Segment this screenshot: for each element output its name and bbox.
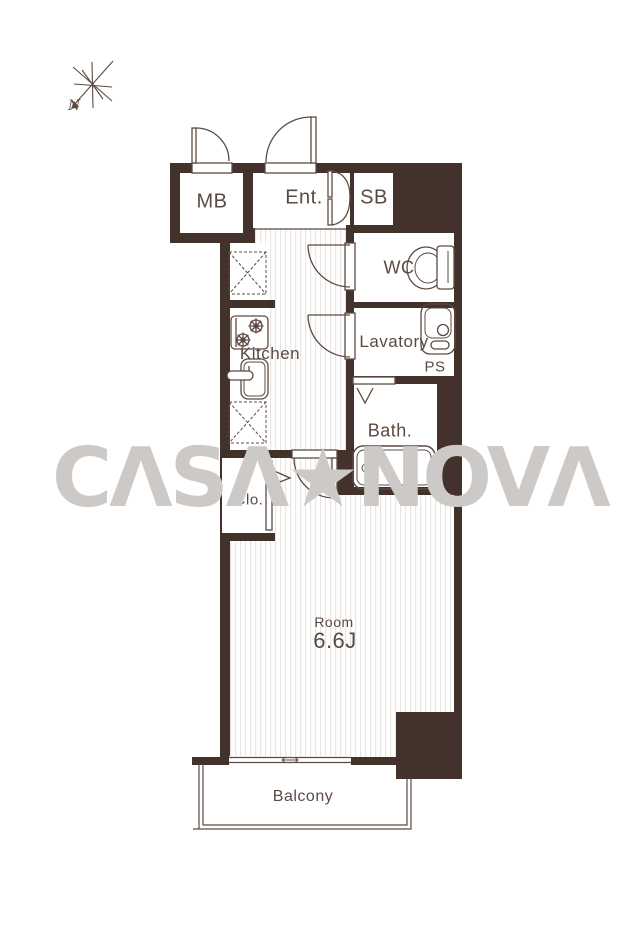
entrance-label: Ent. — [285, 187, 323, 210]
kitchen-label: Kitchen — [240, 344, 300, 364]
burner-icon — [249, 319, 264, 334]
closet-label: Clo. — [235, 492, 264, 509]
bath-label: Bath. — [368, 421, 413, 442]
wc-label: WC — [384, 258, 415, 279]
ps-label: PS — [424, 359, 445, 376]
window-icon — [229, 756, 351, 765]
room-size-label: 6.6J — [313, 628, 357, 654]
mb-door-icon — [192, 128, 229, 163]
floor-plan: MB Ent. SB WC Lavatory PS Kitchen Bath. … — [0, 0, 630, 950]
lavatory-label: Lavatory — [359, 332, 428, 352]
compass-north-label: N — [68, 98, 80, 114]
entrance-door-icon — [266, 117, 316, 163]
balcony-label: Balcony — [273, 788, 333, 806]
mb-label: MB — [197, 191, 228, 214]
floor-plan-drawing — [0, 0, 630, 950]
shoebox-label: SB — [360, 187, 388, 210]
